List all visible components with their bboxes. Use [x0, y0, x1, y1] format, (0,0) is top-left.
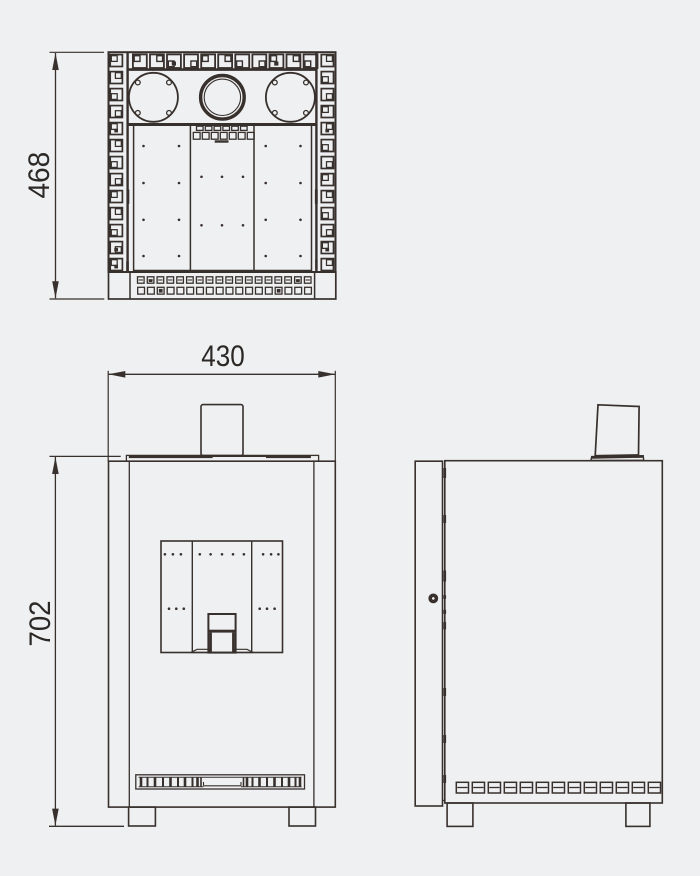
svg-text:430: 430 — [201, 340, 245, 373]
svg-text:468: 468 — [23, 152, 56, 199]
svg-text:702: 702 — [24, 601, 57, 647]
